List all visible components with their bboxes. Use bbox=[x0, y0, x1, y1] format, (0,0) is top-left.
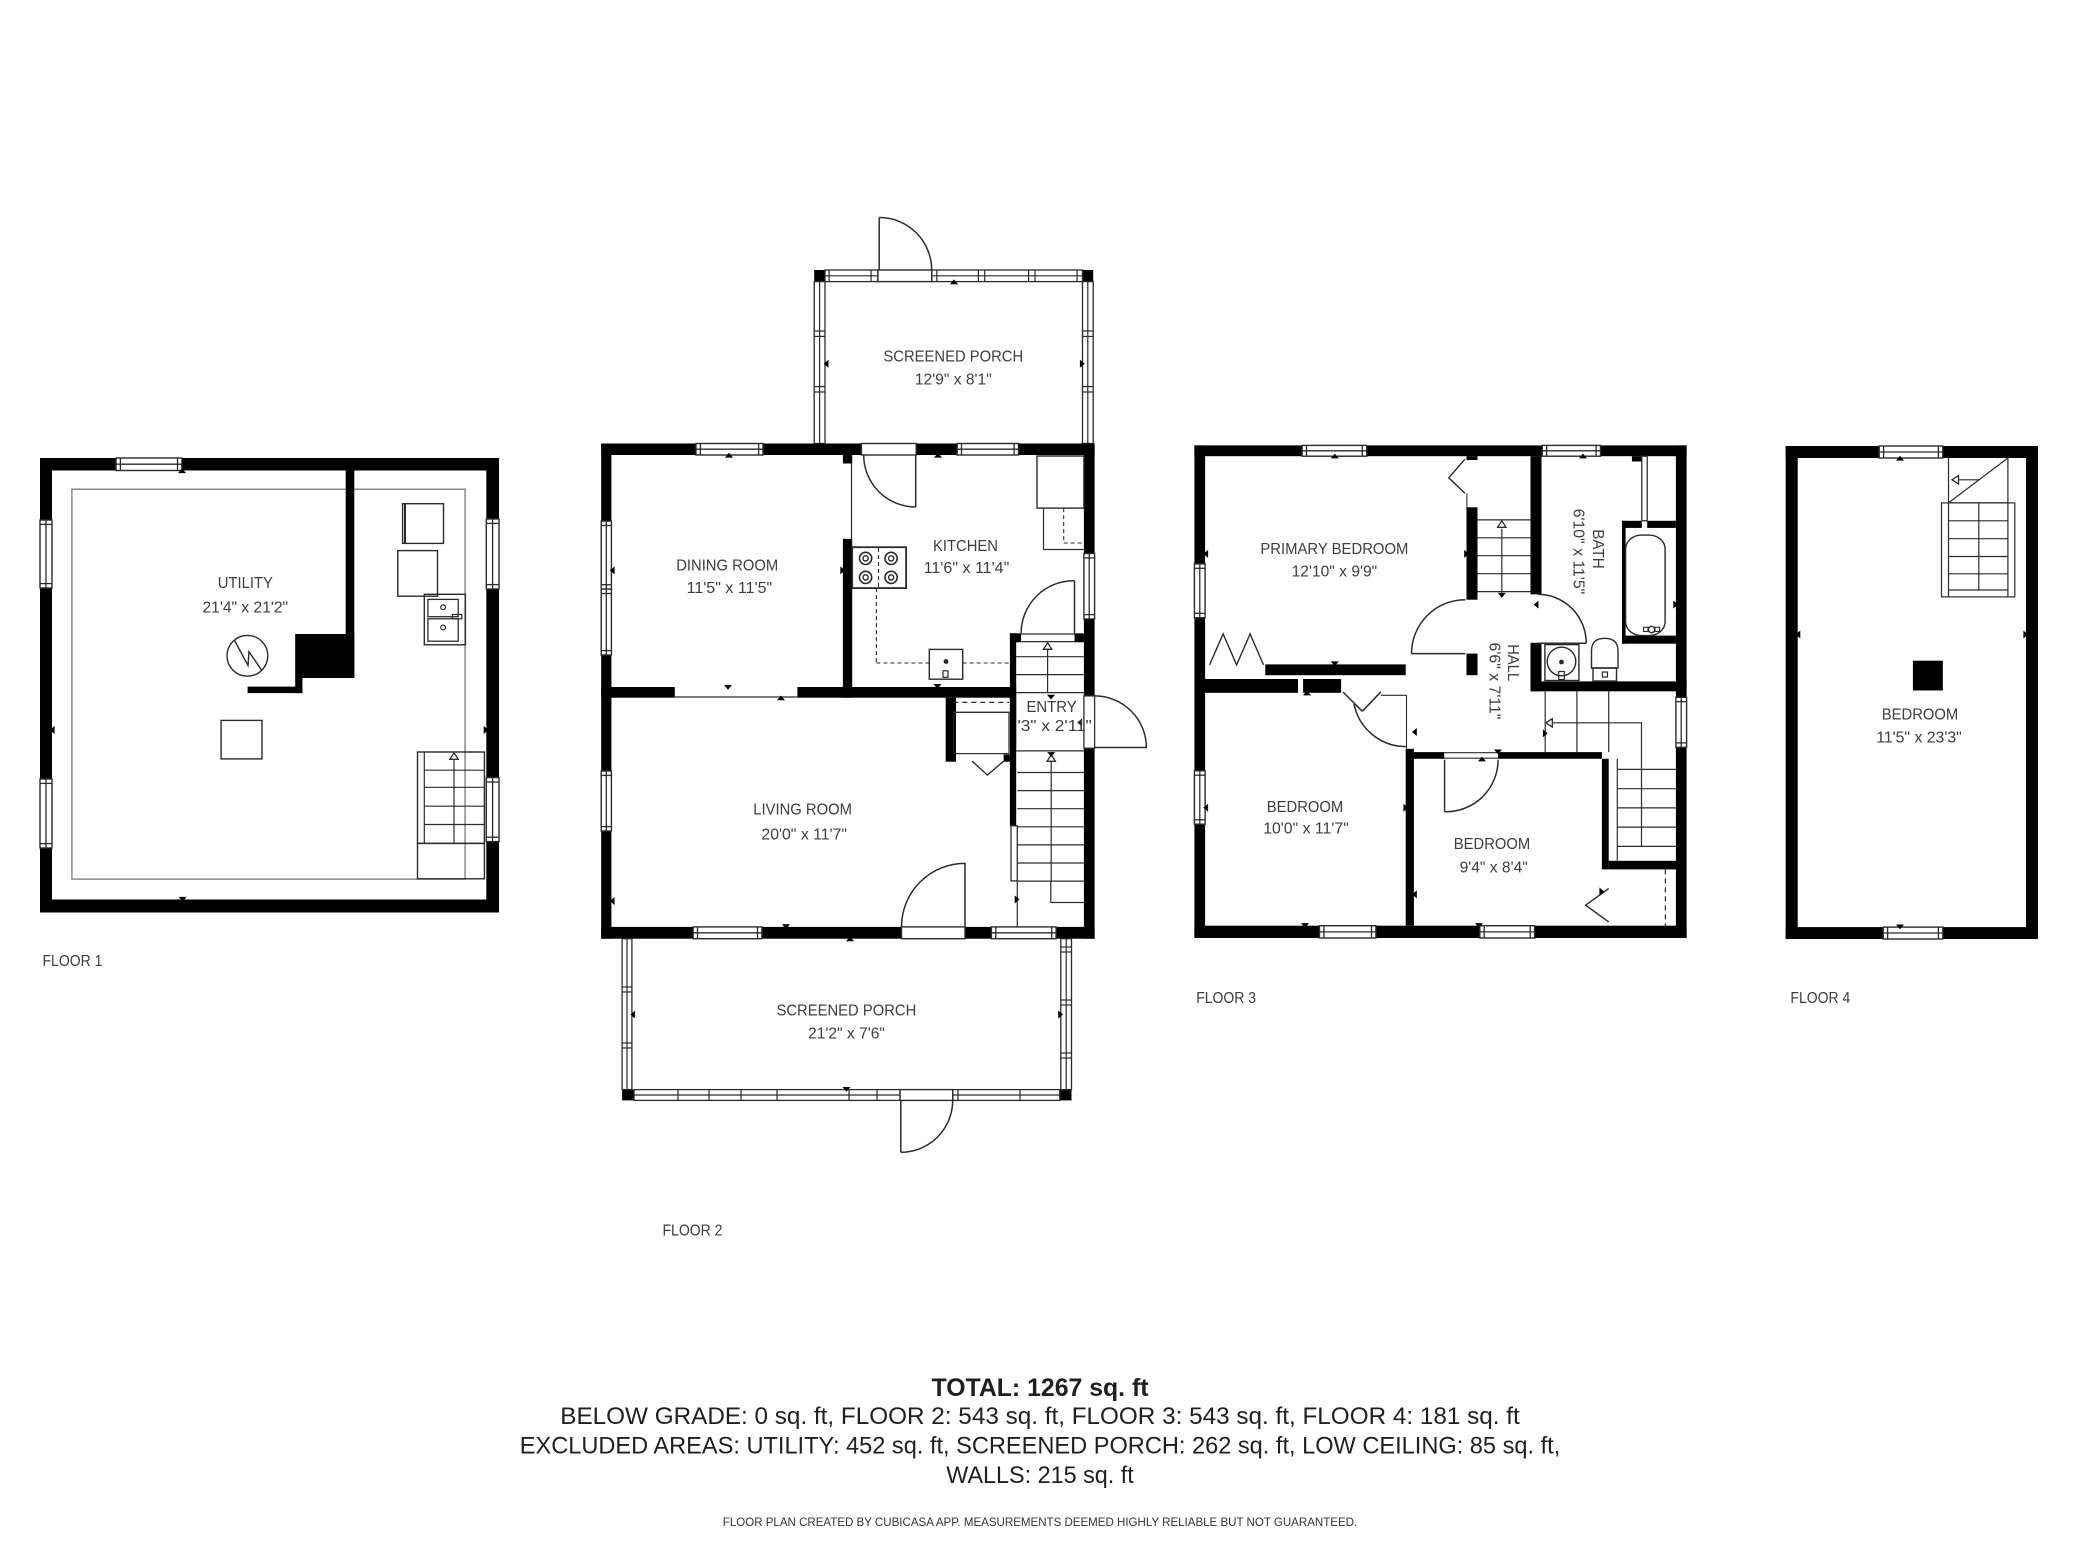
svg-text:FLOOR 4: FLOOR 4 bbox=[1790, 990, 1850, 1007]
svg-text:SCREENED PORCH: SCREENED PORCH bbox=[777, 1003, 917, 1020]
svg-text:FLOOR 3: FLOOR 3 bbox=[1196, 990, 1256, 1007]
svg-text:21'2" x 7'6": 21'2" x 7'6" bbox=[808, 1025, 885, 1042]
svg-text:12'10" x 9'9": 12'10" x 9'9" bbox=[1292, 564, 1378, 581]
svg-text:SCREENED PORCH: SCREENED PORCH bbox=[883, 349, 1023, 366]
svg-text:BELOW GRADE: 0 sq. ft, FLOOR 2: BELOW GRADE: 0 sq. ft, FLOOR 2: 543 sq. … bbox=[560, 1403, 1520, 1430]
svg-text:21'4" x 21'2": 21'4" x 21'2" bbox=[203, 600, 289, 617]
svg-text:BEDROOM: BEDROOM bbox=[1882, 707, 1959, 724]
svg-text:11'5" x 11'5": 11'5" x 11'5" bbox=[687, 580, 773, 597]
svg-text:FLOOR PLAN CREATED BY CUBICASA: FLOOR PLAN CREATED BY CUBICASA APP. MEAS… bbox=[723, 1515, 1357, 1529]
svg-text:11'5" x 23'3": 11'5" x 23'3" bbox=[1876, 730, 1962, 747]
svg-text:20'0" x 11'7": 20'0" x 11'7" bbox=[761, 826, 847, 843]
svg-text:10'0" x 11'7": 10'0" x 11'7" bbox=[1263, 821, 1349, 838]
svg-text:9'4" x 8'4": 9'4" x 8'4" bbox=[1460, 860, 1528, 877]
svg-text:BEDROOM: BEDROOM bbox=[1267, 799, 1344, 816]
svg-text:11'6" x 11'4": 11'6" x 11'4" bbox=[924, 560, 1010, 577]
svg-text:'3" x 2'11": '3" x 2'11" bbox=[1018, 718, 1092, 735]
svg-text:FLOOR 1: FLOOR 1 bbox=[43, 953, 103, 970]
svg-text:12'9" x 8'1": 12'9" x 8'1" bbox=[915, 371, 992, 388]
svg-text:LIVING ROOM: LIVING ROOM bbox=[753, 802, 852, 819]
svg-text:6'6" x 7'11": 6'6" x 7'11" bbox=[1486, 643, 1503, 720]
svg-text:BATH: BATH bbox=[1589, 529, 1606, 569]
svg-text:UTILITY: UTILITY bbox=[218, 575, 273, 592]
svg-text:BEDROOM: BEDROOM bbox=[1454, 836, 1531, 853]
svg-text:ENTRY: ENTRY bbox=[1027, 699, 1078, 716]
svg-text:6'10" x 11'5": 6'10" x 11'5" bbox=[1570, 509, 1587, 595]
svg-text:HALL: HALL bbox=[1504, 644, 1521, 681]
svg-text:KITCHEN: KITCHEN bbox=[933, 538, 998, 555]
svg-text:DINING ROOM: DINING ROOM bbox=[676, 557, 778, 574]
svg-text:WALLS: 215 sq. ft: WALLS: 215 sq. ft bbox=[946, 1462, 1134, 1489]
svg-text:FLOOR 2: FLOOR 2 bbox=[663, 1223, 723, 1240]
svg-text:EXCLUDED AREAS: UTILITY: 452 s: EXCLUDED AREAS: UTILITY: 452 sq. ft, SCR… bbox=[520, 1433, 1561, 1460]
svg-text:PRIMARY BEDROOM: PRIMARY BEDROOM bbox=[1260, 541, 1408, 558]
svg-text:TOTAL: 1267 sq. ft: TOTAL: 1267 sq. ft bbox=[932, 1374, 1150, 1402]
